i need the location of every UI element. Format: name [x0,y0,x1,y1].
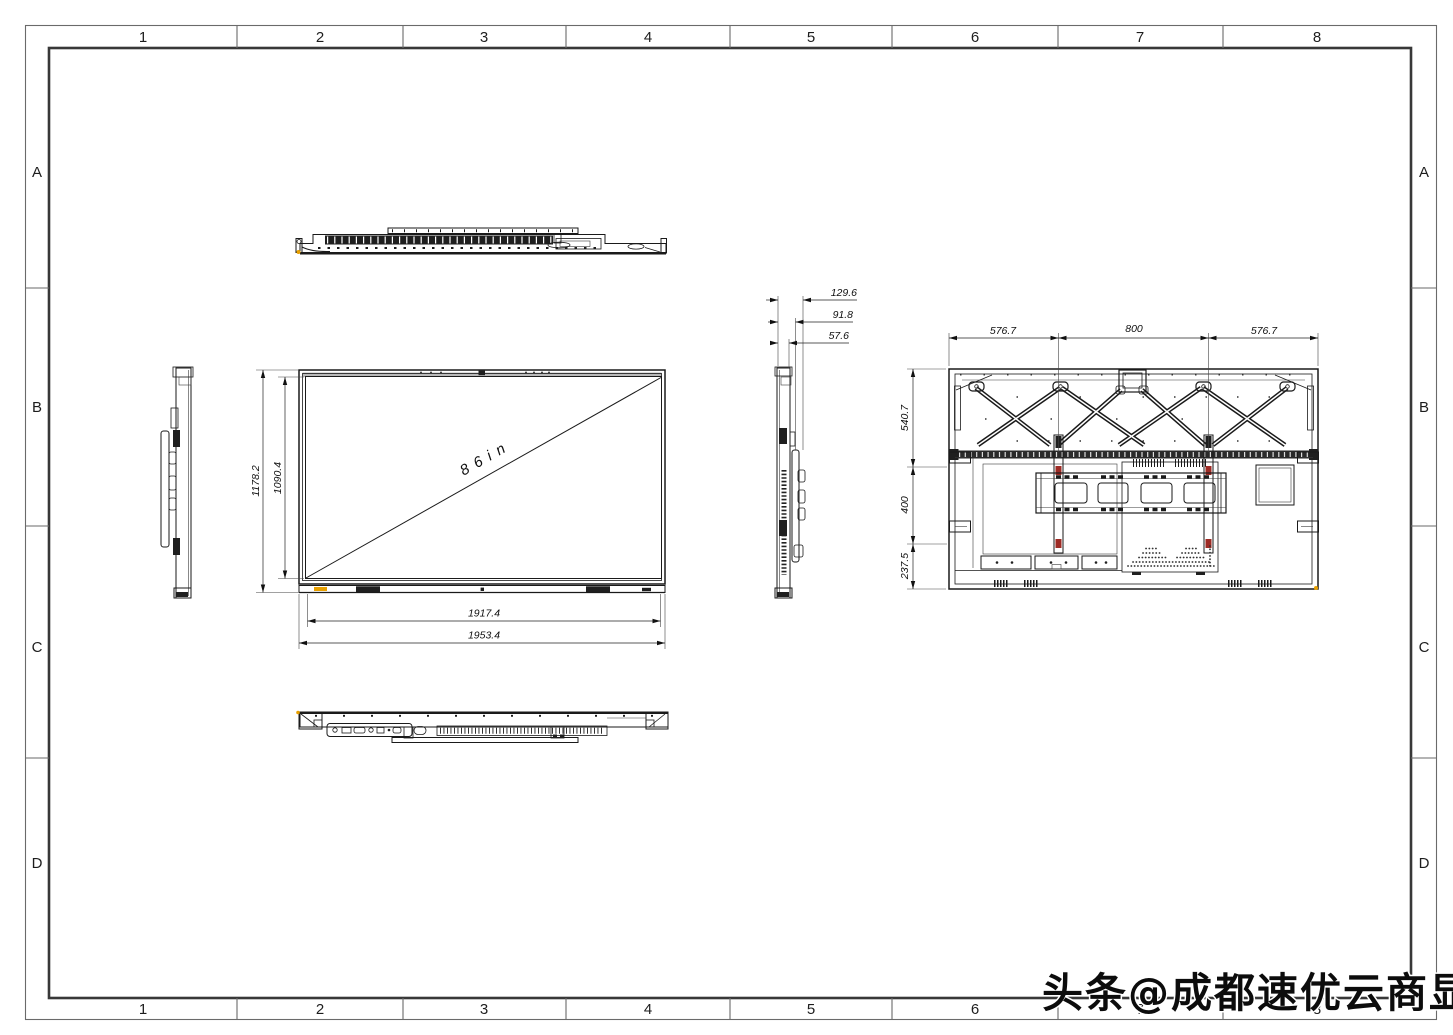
rail-lock-marker [1206,466,1212,475]
dim-top-center-span: 800 [1125,323,1143,335]
cad-drawing: 1 2 3 4 5 6 7 8 1 2 3 4 5 6 7 8 A B C D … [0,0,1453,1035]
cross-rail [957,451,1310,459]
grid-col-label: 3 [480,1001,488,1018]
grid-col-label: 2 [316,29,324,46]
dim-top-right-span: 576.7 [1251,325,1278,337]
grid-col-label: 4 [644,29,652,46]
grid-row-label: C [1419,639,1430,656]
grid-col-label: 6 [971,1001,979,1018]
dim-body-depth: 57.6 [829,330,850,342]
dim-active-width: 1917.4 [468,608,500,620]
side-profile-view: 129.6 91.8 57.6 [766,287,857,598]
grid-col-label: 7 [1136,29,1144,46]
front-bottom-bar [299,586,665,593]
bottom-view [296,711,668,743]
grid-row-label: A [1419,164,1429,181]
top-view [296,228,667,254]
dim-overall-width: 1953.4 [468,630,500,642]
grid-col-label: 1 [139,29,147,46]
port-strip [327,724,426,737]
dim-upper-height: 540.7 [899,404,911,431]
grid-col-label: 2 [316,1001,324,1018]
grid-col-label: 6 [971,29,979,46]
left-side-view [161,367,193,598]
dim-lower-height: 237.5 [899,553,911,580]
grid-row-label: D [32,855,43,872]
rail-lock-marker [1056,539,1062,548]
dim-mount-depth: 91.8 [833,309,854,321]
drawing-sheet: 1 2 3 4 5 6 7 8 1 2 3 4 5 6 7 8 A B C D … [0,0,1453,1035]
vesa-mount-bar [1036,473,1226,513]
speaker-dot-pattern [1128,546,1214,566]
screen-size-label: 86in [457,437,514,480]
front-dimensions: 1178.2 1090.4 1917.4 1953.4 [250,370,665,649]
watermark-text: 头条@成都速优云商显 [1042,969,1453,1017]
grid-col-label: 5 [807,1001,815,1018]
rear-view: 576.7 800 576.7 540.7 400 237.5 [899,323,1319,590]
grid-row-label: B [1419,399,1429,416]
dim-overall-depth: 129.6 [831,287,857,299]
dim-top-left-span: 576.7 [990,325,1017,337]
rear-connector-panels [981,556,1117,569]
grid-labels: 1 2 3 4 5 6 7 8 1 2 3 4 5 6 7 8 A B C D … [32,29,1430,1018]
grid-row-label: D [1419,855,1430,872]
front-view: 86in 1178.2 1090.4 [250,370,665,649]
grid-col-label: 5 [807,29,815,46]
corner-marker-dot [1314,586,1318,590]
grid-col-label: 3 [480,29,488,46]
grid-col-label: 8 [1313,29,1321,46]
grid-row-label: C [32,639,43,656]
grid-row-label: B [32,399,42,416]
brand-logo [314,587,327,591]
grid-col-label: 4 [644,1001,652,1018]
grid-row-label: A [32,164,42,181]
border-frame: 1 2 3 4 5 6 7 8 1 2 3 4 5 6 7 8 A B C D … [26,26,1438,1020]
dim-vesa-height: 400 [899,496,911,514]
corner-marker-dot [296,711,300,715]
corner-marker-dot [297,250,301,254]
grid-col-label: 1 [139,1001,147,1018]
rail-lock-marker [1056,466,1062,475]
dim-active-height: 1090.4 [272,462,284,494]
dim-overall-height: 1178.2 [250,465,262,496]
